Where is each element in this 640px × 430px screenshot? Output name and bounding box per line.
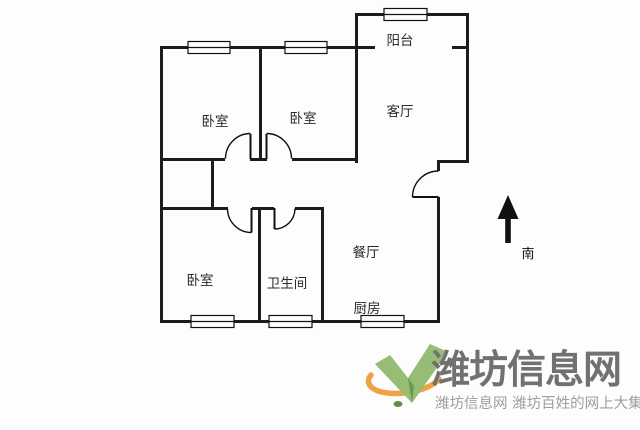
up-arrow-icon xyxy=(498,195,519,243)
window-kitchen xyxy=(361,316,404,328)
label-bathroom: 卫生间 xyxy=(267,276,308,292)
floor-plan-page: 阳台 卧室 卧室 客厅 餐厅 卧室 卫生间 厨房 南 潍坊信息网 潍坊信息网 潍… xyxy=(0,0,640,430)
wall-outer-right-lower xyxy=(437,197,440,323)
door-bathroom xyxy=(275,208,296,229)
sprout-icon xyxy=(394,401,403,407)
window-bathroom xyxy=(269,316,312,328)
compass-south-label: 南 xyxy=(521,246,534,262)
wall-entry-jamb xyxy=(437,160,440,171)
label-bedroom-top-left: 卧室 xyxy=(202,113,229,130)
window-bedroom-top-left xyxy=(188,42,230,54)
wall-mid-b xyxy=(250,158,267,161)
wall-bedroom-bath-divider xyxy=(258,207,261,323)
wall-bath-right xyxy=(321,207,324,323)
wall-mid-c xyxy=(292,158,358,161)
door-entry xyxy=(413,171,439,197)
window-balcony xyxy=(384,9,427,21)
label-balcony: 阳台 xyxy=(387,33,414,49)
wall-lower-top-b xyxy=(252,207,274,210)
wall-mid-a xyxy=(160,158,225,161)
label-dining-room: 餐厅 xyxy=(353,245,380,261)
watermark-site-name: 潍坊信息网 xyxy=(431,351,636,390)
window-bedroom-top-middle xyxy=(285,42,327,54)
compass: 南 xyxy=(498,195,535,262)
door-bedroom-top-left xyxy=(226,134,251,160)
watermark-tagline: 潍坊信息网 潍坊百姓的网上大集 xyxy=(435,397,635,413)
wall-outer-left xyxy=(160,46,163,323)
doors xyxy=(226,134,439,233)
wall-outer-right-upper xyxy=(466,13,469,163)
wall-balcony-left xyxy=(355,13,358,163)
door-bedroom-bottom xyxy=(228,208,252,233)
windows xyxy=(188,9,427,328)
wall-lower-top-c xyxy=(295,207,324,210)
wall-right-step xyxy=(437,160,469,163)
label-kitchen: 厨房 xyxy=(354,301,381,317)
room-labels: 阳台 卧室 卧室 客厅 餐厅 卧室 卫生间 厨房 xyxy=(187,33,414,317)
window-bedroom-bottom xyxy=(191,316,234,328)
label-living-room: 客厅 xyxy=(387,103,414,120)
wall-niche-right xyxy=(211,158,214,210)
label-bedroom-top-middle: 卧室 xyxy=(290,110,317,127)
label-bedroom-bottom: 卧室 xyxy=(187,272,214,289)
wall-lower-top-a xyxy=(160,207,228,210)
wall-bedroom-divider-top xyxy=(259,46,262,160)
door-bedroom-top-middle xyxy=(267,134,292,160)
